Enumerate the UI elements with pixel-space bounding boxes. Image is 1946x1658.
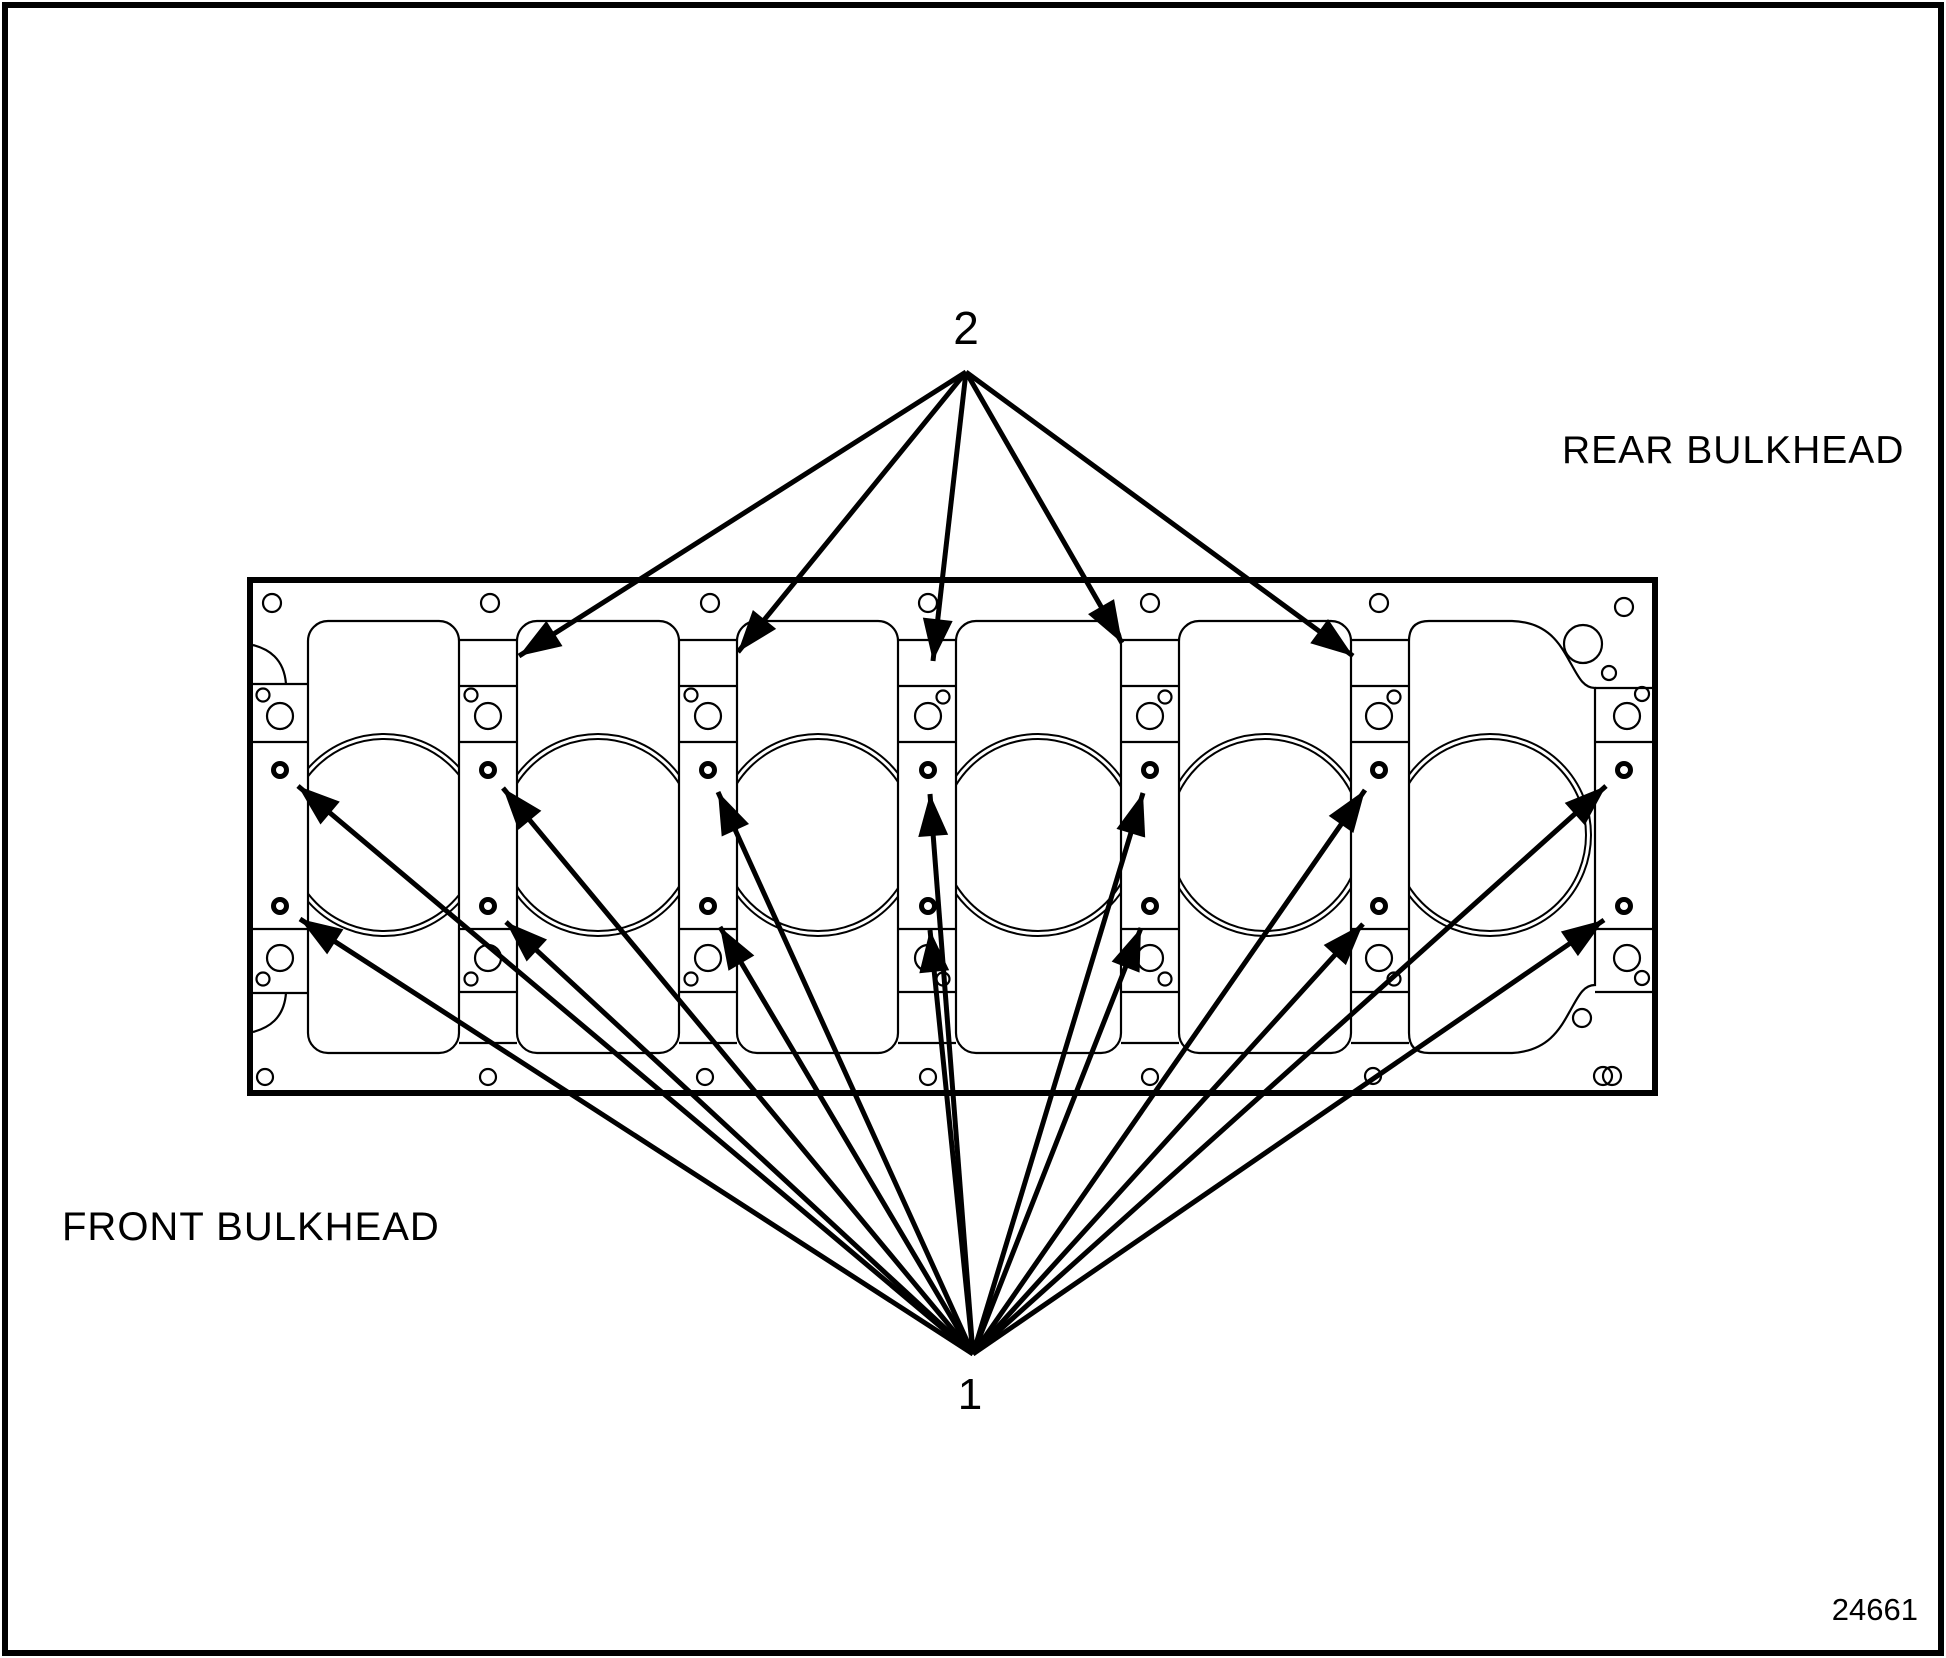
- callout-1-arrow: [973, 786, 1606, 1354]
- main-bearing-bolt-hole: [1373, 900, 1386, 913]
- block-hole: [1615, 598, 1633, 616]
- block-hole: [475, 703, 501, 729]
- cylinder-bore: [717, 734, 919, 936]
- main-bearing-bolt-hole: [1144, 900, 1157, 913]
- block-hole: [1635, 971, 1649, 985]
- rear-bulkhead-label: REAR BULKHEAD: [1562, 429, 1904, 473]
- cylinder-window: [1179, 621, 1351, 1053]
- left-edge-scallop: [253, 993, 286, 1032]
- callout-2-arrow: [519, 372, 966, 656]
- callout-1-arrow: [973, 928, 1141, 1354]
- block-hole: [1388, 691, 1401, 704]
- callout-2-arrow: [966, 372, 1353, 656]
- callout-1-arrow: [506, 922, 973, 1354]
- block-hole: [257, 973, 270, 986]
- block-hole: [1573, 1009, 1591, 1027]
- block-hole: [919, 594, 937, 612]
- block-hole: [1614, 703, 1640, 729]
- block-hole: [1141, 594, 1159, 612]
- block-hole: [697, 1069, 713, 1085]
- block-hole: [685, 973, 698, 986]
- block-hole: [465, 973, 478, 986]
- block-hole: [1370, 594, 1388, 612]
- callout-1-arrow: [973, 790, 1365, 1354]
- block-hole: [685, 689, 698, 702]
- cylinder-window: [308, 621, 459, 1053]
- callout-1-arrow: [973, 920, 1604, 1354]
- callout-1-number: 1: [958, 1370, 982, 1420]
- block-hole: [1137, 945, 1163, 971]
- callout-2-number: 2: [953, 301, 979, 355]
- block-hole: [1564, 625, 1602, 663]
- cylinder-window: [956, 621, 1121, 1053]
- block-hole: [1142, 1069, 1158, 1085]
- block-hole: [480, 1069, 496, 1085]
- callout-1-arrow: [973, 793, 1143, 1354]
- main-bearing-bolt-hole: [482, 764, 495, 777]
- left-edge-scallop: [253, 645, 286, 684]
- figure-page: 2 1 REAR BULKHEAD FRONT BULKHEAD 24661: [0, 0, 1946, 1658]
- main-bearing-bolt-hole: [1618, 900, 1631, 913]
- main-bearing-bolt-hole: [922, 900, 935, 913]
- block-hole: [1159, 691, 1172, 704]
- block-hole: [267, 945, 293, 971]
- main-bearing-bolt-holes: [274, 764, 1631, 913]
- block-hole: [1366, 945, 1392, 971]
- main-bearing-bolt-hole: [274, 764, 287, 777]
- block-hole: [1602, 666, 1616, 680]
- cylinder-window: [737, 621, 898, 1053]
- block-hole: [915, 945, 941, 971]
- bulkhead-lines: [250, 640, 1653, 1043]
- block-hole: [1366, 703, 1392, 729]
- main-bearing-bolt-hole: [1144, 764, 1157, 777]
- main-bearing-bolt-hole: [1373, 764, 1386, 777]
- block-holes: [257, 594, 1650, 1085]
- block-hole: [465, 689, 478, 702]
- block-hole: [915, 703, 941, 729]
- callout-2-arrow: [933, 372, 966, 661]
- block-outline: [250, 580, 1655, 1093]
- block-hole: [937, 691, 950, 704]
- block-hole: [263, 594, 281, 612]
- block-hole: [1614, 945, 1640, 971]
- main-bearing-bolt-hole: [1618, 764, 1631, 777]
- main-bearing-bolt-hole: [702, 764, 715, 777]
- cylinder-bore: [1389, 734, 1591, 936]
- callout-1-arrow: [298, 786, 973, 1354]
- block-hole: [695, 945, 721, 971]
- cylinder-bore: [283, 734, 485, 936]
- figure-number: 24661: [1832, 1592, 1918, 1628]
- block-hole: [1159, 973, 1172, 986]
- front-bulkhead-label: FRONT BULKHEAD: [62, 1205, 440, 1250]
- block-hole: [481, 594, 499, 612]
- callout-2-arrow: [966, 372, 1122, 643]
- main-bearing-bolt-hole: [922, 764, 935, 777]
- main-bearing-bolt-hole: [482, 900, 495, 913]
- block-hole: [267, 703, 293, 729]
- block-hole: [1137, 703, 1163, 729]
- block-hole: [920, 1069, 936, 1085]
- callout-1-arrow: [973, 924, 1363, 1354]
- block-hole: [701, 594, 719, 612]
- main-bearing-bolt-hole: [274, 900, 287, 913]
- main-bearing-bolt-hole: [702, 900, 715, 913]
- block-hole: [257, 689, 270, 702]
- block-hole: [257, 1069, 273, 1085]
- block-hole: [695, 703, 721, 729]
